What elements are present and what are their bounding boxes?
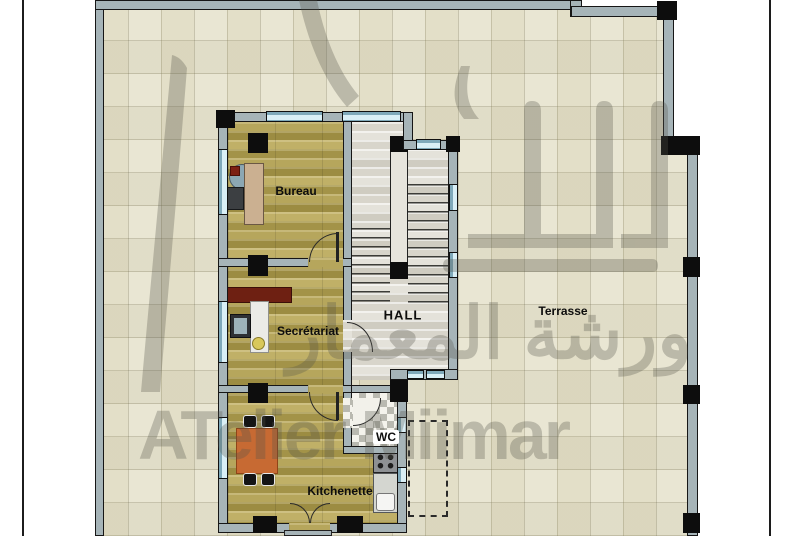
monitor-screen: [234, 318, 247, 334]
site-wall-top: [95, 0, 572, 10]
stair-divider: [390, 150, 408, 278]
label-secretariat: Secrétariat: [277, 324, 339, 338]
terrace-wall-lower: [687, 150, 698, 536]
window: [218, 301, 228, 363]
label-hall: HALL: [384, 308, 423, 323]
column-marker: [661, 136, 700, 155]
column-marker: [253, 516, 277, 533]
dining-chair: [243, 473, 257, 486]
column-marker: [446, 136, 460, 152]
stair-treads-right: [408, 184, 448, 306]
floor-plan-page: ورشة المعمار ATelier Miimar Bureau Secré…: [0, 0, 791, 536]
bureau-desk: [244, 163, 264, 225]
column-marker: [683, 513, 700, 533]
page-border-right: [769, 0, 771, 536]
window: [416, 139, 441, 150]
column-marker: [390, 380, 408, 402]
secretariat-chair: [252, 337, 265, 350]
site-wall-left: [95, 0, 104, 536]
window: [449, 184, 458, 211]
window: [407, 370, 424, 379]
outside-area: [674, 0, 791, 150]
desk-accessory: [230, 166, 240, 176]
wall-hall-south: [390, 369, 458, 380]
terrace-wall-upper: [663, 16, 674, 140]
label-terrasse: Terrasse: [538, 304, 587, 318]
window: [449, 252, 458, 278]
column-marker: [337, 516, 363, 533]
column-marker: [248, 383, 268, 403]
column-marker: [657, 1, 677, 20]
sink: [376, 493, 395, 511]
window: [218, 417, 228, 479]
window: [342, 111, 401, 122]
column-marker: [216, 110, 235, 128]
label-kitchenette: Kitchenette: [307, 484, 372, 498]
window: [426, 370, 445, 379]
wall-east: [397, 393, 407, 533]
door-opening: [343, 398, 352, 428]
printer: [227, 187, 244, 210]
entrance-step: [284, 530, 332, 536]
dashed-outline: [408, 420, 448, 517]
window: [266, 111, 323, 122]
label-wc: WC: [373, 430, 399, 444]
window: [397, 467, 407, 483]
dining-chair: [243, 415, 257, 428]
column-marker: [683, 257, 700, 277]
dining-chair: [261, 415, 275, 428]
stair-column-bottom: [390, 262, 408, 279]
window: [218, 149, 228, 215]
label-bureau: Bureau: [275, 184, 316, 198]
column-marker: [248, 133, 268, 153]
column-marker: [683, 385, 700, 404]
page-border-left: [22, 0, 24, 536]
site-wall-step: [571, 6, 666, 17]
outside-area: [698, 148, 791, 536]
stair-treads-left: [352, 228, 390, 306]
column-marker: [248, 255, 268, 276]
dining-table: [236, 428, 278, 474]
dining-chair: [261, 473, 275, 486]
